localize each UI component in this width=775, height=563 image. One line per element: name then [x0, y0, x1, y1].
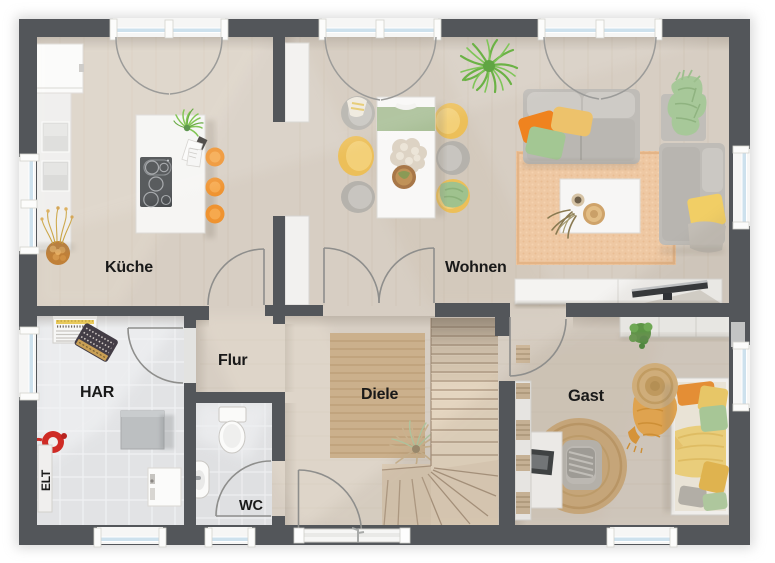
svg-text:ELT: ELT: [39, 469, 53, 491]
svg-text:Küche: Küche: [105, 259, 153, 276]
svg-text:HAR: HAR: [80, 384, 115, 401]
svg-text:Flur: Flur: [218, 352, 247, 369]
svg-text:WC: WC: [239, 498, 263, 514]
svg-text:Diele: Diele: [361, 386, 399, 403]
svg-text:Gast: Gast: [568, 387, 605, 405]
svg-text:Wohnen: Wohnen: [445, 259, 507, 276]
